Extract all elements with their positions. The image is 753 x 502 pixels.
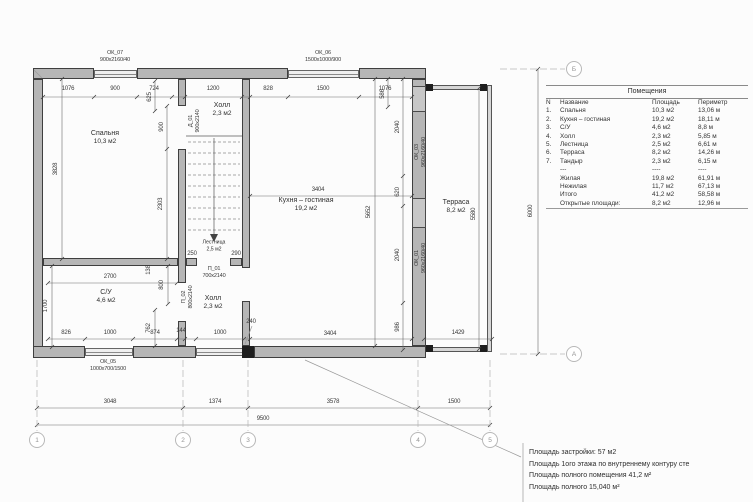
room-name: Холл [213, 101, 232, 110]
table-cell: 11,7 м2 [652, 183, 698, 191]
dimension-label: 3048 [104, 399, 117, 405]
table-row: Нежилая11,7 м267,13 м [546, 183, 748, 191]
dimension-label: 2040 [395, 121, 401, 134]
table-header-cell: N [546, 99, 560, 107]
table-cell: 7. [546, 158, 560, 166]
table-cell: 61,91 м [698, 175, 748, 183]
dimension-label: 6000 [528, 205, 534, 218]
room-name: Спальня [91, 129, 119, 138]
opening-size: 960х2160/40 [421, 137, 428, 167]
opening-label-ОК_05: ОК_051000х700/1500 [90, 359, 126, 373]
room-label: Лестница2,5 м2 [203, 239, 226, 253]
opening-id: ОК_07 [107, 50, 123, 56]
opening-id: ОК_06 [315, 50, 331, 56]
table-cell: Нежилая [560, 183, 652, 191]
opening-label-ОК_06: ОК_061500х1000/900 [305, 50, 341, 64]
dimension-label: 625 [147, 92, 153, 101]
opening-id: ОК_03 [414, 144, 420, 160]
table-cell: Спальня [560, 107, 652, 115]
table-cell: 18,11 м [698, 116, 748, 124]
dimension-label: 1000 [104, 330, 117, 336]
dimension-label: 800 [159, 280, 165, 289]
room-area: 2,5 м2 [203, 246, 226, 253]
opening-label-Д_01: Д_01900х2140 [188, 110, 202, 133]
opening-label-ОК_07: ОК_07900х2160/40 [100, 50, 130, 64]
room-area: 10,3 м2 [91, 138, 119, 146]
note-line: Площадь застройки: 57 м2 [529, 447, 753, 459]
room-schedule-table: Помещения NНазваниеПлощадьПериметр1.Спал… [546, 85, 748, 209]
dimension-label: 3404 [312, 187, 325, 193]
grid-bubble-row: А [566, 346, 582, 362]
dimension-label: 1200 [207, 86, 220, 92]
table-cell: --- [560, 166, 652, 174]
dimension-label: 900 [110, 86, 119, 92]
table-cell: 13,06 м [698, 107, 748, 115]
dimension-label: 1700 [43, 300, 49, 313]
table-header-cell: Периметр [698, 99, 748, 107]
room-label: Кухня – гостиная19,2 м2 [279, 196, 334, 214]
table-cell: 4,6 м2 [652, 124, 698, 132]
table-row: 4.Холл2,3 м25,85 м [546, 133, 748, 141]
dimension-label: 874 [150, 330, 159, 336]
table-cell: 67,13 м [698, 183, 748, 191]
table-header-cell: Название [560, 99, 652, 107]
table-cell: ---- [652, 166, 698, 174]
room-area: 4,6 м2 [97, 297, 116, 305]
dimension-label: 1000 [214, 330, 227, 336]
table-cell: 2,3 м2 [652, 158, 698, 166]
table-cell: Лестница [560, 141, 652, 149]
table-cell: 8,8 м [698, 124, 748, 132]
room-area: 19,2 м2 [279, 205, 334, 213]
room-name: С/У [97, 288, 116, 297]
opening-size: 900х2160/40 [100, 57, 130, 64]
table-row: 5.Лестница2,5 м26,61 м [546, 141, 748, 149]
dimension-label: 5580 [471, 208, 477, 221]
table-cell: 5. [546, 141, 560, 149]
grid-bubble-col: 1 [29, 432, 45, 448]
opening-label-П_01: П_01700х2140 [203, 266, 226, 280]
room-area: 2,3 м2 [213, 110, 232, 118]
table-cell: 14,26 м [698, 149, 748, 157]
table-cell: Итого [560, 191, 652, 199]
table-cell: Жилая [560, 175, 652, 183]
table-cell [546, 175, 560, 183]
grid-bubble-col: 4 [410, 432, 426, 448]
dimension-label: 3404 [324, 331, 337, 337]
grid-bubble-col: 3 [240, 432, 256, 448]
table-cell: 4. [546, 133, 560, 141]
area-notes: Площадь застройки: 57 м2Площадь 1ого эта… [529, 447, 753, 493]
dimension-label: 986 [395, 322, 401, 331]
room-label: С/У4,6 м2 [97, 288, 116, 306]
opening-label-П_02: П_02800х2140 [181, 286, 195, 309]
table-row: 1.Спальня10,3 м213,06 м [546, 107, 748, 115]
opening-size: 1000х700/1500 [90, 366, 126, 373]
dimension-label: 5652 [366, 206, 372, 219]
room-area: 8,2 м2 [443, 207, 470, 215]
table-cell: 6. [546, 149, 560, 157]
table-row: ----------- [546, 166, 748, 174]
dimension-ticks [35, 67, 540, 427]
table-cell [546, 191, 560, 199]
table-header-cell: Площадь [652, 99, 698, 107]
opening-id: ОК_05 [100, 359, 116, 365]
grid-bubble-col: 5 [482, 432, 498, 448]
table-cell: 1. [546, 107, 560, 115]
opening-label-ОК_03: ОК_03960х2160/40 [414, 137, 428, 167]
table-row: 2.Кухня – гостиная19,2 м218,11 м [546, 116, 748, 124]
dimension-label: 586 [380, 89, 386, 98]
opening-id: П_02 [181, 291, 187, 304]
table-cell: Открытые площади: [560, 200, 652, 209]
room-name: Кухня – гостиная [279, 196, 334, 205]
room-schedule: NНазваниеПлощадьПериметр1.Спальня10,3 м2… [546, 99, 748, 209]
note-line: Площадь полного помещения 41,2 м² [529, 470, 753, 482]
grid-axis-lines [37, 69, 565, 431]
dimension-label: 724 [149, 86, 158, 92]
opening-size: 1500х1000/900 [305, 57, 341, 64]
room-name: Терраса [443, 198, 470, 207]
table-cell: С/У [560, 124, 652, 132]
table-cell [546, 183, 560, 191]
floor-plan-canvas: 1076900724120082815001076625900586382823… [0, 0, 753, 502]
dimension-label: 240 [246, 319, 255, 325]
table-header-row: NНазваниеПлощадьПериметр [546, 99, 748, 107]
table-cell [546, 166, 560, 174]
dimension-label: 3828 [53, 163, 59, 176]
table-cell: 2,5 м2 [652, 141, 698, 149]
room-label: Спальня10,3 м2 [91, 129, 119, 147]
table-row: 6.Терраса8,2 м214,26 м [546, 149, 748, 157]
opening-label-ОК_01: ОК_01960х2160/40 [414, 243, 428, 273]
table-row: 7.Тандыр2,3 м26,15 м [546, 158, 748, 166]
table-cell: Тандыр [560, 158, 652, 166]
dimension-label: 620 [395, 187, 401, 196]
table-cell: 2,3 м2 [652, 133, 698, 141]
dimension-label: 1076 [62, 86, 75, 92]
room-area: 2,3 м2 [204, 303, 223, 311]
table-row: Открытые площади:8,2 м212,96 м [546, 200, 748, 209]
table-cell: 10,3 м2 [652, 107, 698, 115]
table-cell: 2. [546, 116, 560, 124]
room-label: Холл2,3 м2 [213, 101, 232, 119]
table-cell: 8,2 м2 [652, 200, 698, 209]
dimension-label: 828 [263, 86, 272, 92]
table-cell: 19,8 м2 [652, 175, 698, 183]
room-name: Лестница [203, 239, 226, 246]
opening-id: ОК_01 [414, 250, 420, 266]
room-label: Терраса8,2 м2 [443, 198, 470, 216]
table-cell: 3. [546, 124, 560, 132]
opening-id: Д_01 [188, 115, 194, 127]
table-cell: 6,15 м [698, 158, 748, 166]
dimension-label: 2700 [104, 274, 117, 280]
table-cell: ---- [698, 166, 748, 174]
table-cell: 58,58 м [698, 191, 748, 199]
opening-size: 700х2140 [203, 273, 226, 280]
dimension-label: 1374 [209, 399, 222, 405]
room-label: Холл2,3 м2 [204, 294, 223, 312]
note-line: Площадь полного 15,040 м² [529, 482, 753, 494]
table-cell: 6,61 м [698, 141, 748, 149]
dimension-label: 144 [176, 328, 185, 334]
table-row: Итого41,2 м258,58 м [546, 191, 748, 199]
table-title: Помещения [546, 86, 748, 99]
opening-id: П_01 [208, 266, 221, 272]
grid-bubble-row: Б [566, 61, 582, 77]
table-cell [546, 200, 560, 209]
table-cell: 12,96 м [698, 200, 748, 209]
room-name: Холл [204, 294, 223, 303]
opening-size: 960х2160/40 [421, 243, 428, 273]
dimension-label: 826 [61, 330, 70, 336]
table-row: Жилая19,8 м261,91 м [546, 175, 748, 183]
opening-size: 800х2140 [188, 286, 195, 309]
plan-linework [0, 0, 753, 502]
table-cell: 41,2 м2 [652, 191, 698, 199]
grid-bubble-col: 2 [175, 432, 191, 448]
table-cell: Кухня – гостиная [560, 116, 652, 124]
dimension-label: 1500 [448, 399, 461, 405]
dimension-label: 250 [187, 251, 196, 257]
table-cell: 8,2 м2 [652, 149, 698, 157]
dimension-label: 290 [231, 251, 240, 257]
table-cell: Терраса [560, 149, 652, 157]
note-line: Площадь 1ого этажа по внутреннему контур… [529, 459, 753, 471]
table-cell: 19,2 м2 [652, 116, 698, 124]
dimension-label: 9500 [257, 416, 270, 422]
dimension-label: 1429 [452, 330, 465, 336]
dimension-label: 3578 [327, 399, 340, 405]
table-cell: 5,85 м [698, 133, 748, 141]
dimension-label: 2303 [158, 198, 164, 211]
table-row: 3.С/У4,6 м28,8 м [546, 124, 748, 132]
dimension-label: 900 [159, 122, 165, 131]
dimension-label: 138 [146, 265, 152, 274]
table-cell: Холл [560, 133, 652, 141]
opening-size: 900х2140 [195, 110, 202, 133]
dimension-label: 2040 [395, 249, 401, 262]
dimension-label: 1500 [317, 86, 330, 92]
